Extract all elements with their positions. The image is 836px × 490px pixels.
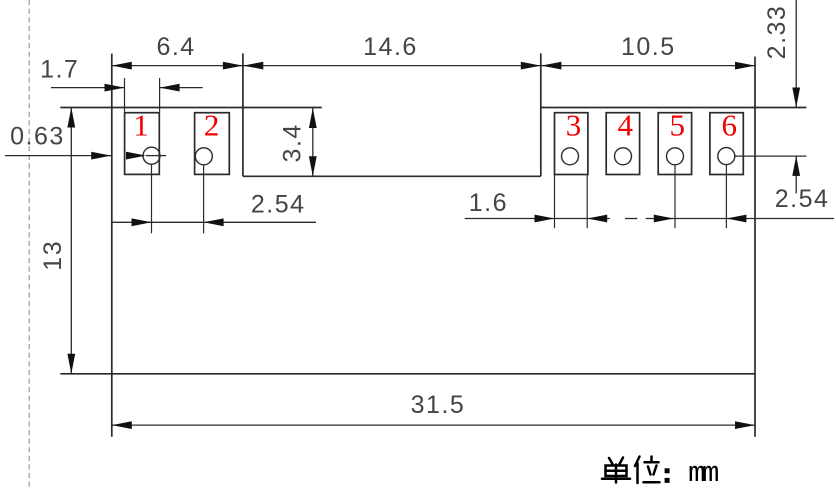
svg-text:1.6: 1.6	[469, 189, 508, 217]
svg-text:13: 13	[39, 240, 67, 271]
svg-text:3: 3	[566, 108, 582, 143]
svg-text:14.6: 14.6	[363, 33, 418, 61]
svg-text:2.33: 2.33	[763, 5, 791, 60]
svg-text:6: 6	[721, 108, 737, 143]
svg-text:2: 2	[204, 108, 220, 143]
svg-text:4: 4	[617, 108, 633, 143]
svg-text:mm: mm	[688, 457, 718, 490]
svg-text:2.54: 2.54	[775, 185, 830, 213]
svg-text:1.7: 1.7	[40, 56, 79, 84]
svg-text:31.5: 31.5	[411, 391, 466, 419]
svg-text:5: 5	[669, 108, 685, 143]
svg-text:3.4: 3.4	[279, 123, 307, 162]
svg-text:6.4: 6.4	[156, 33, 195, 61]
svg-text:0.63: 0.63	[10, 122, 65, 150]
svg-text:1: 1	[133, 108, 149, 143]
svg-text:10.5: 10.5	[621, 33, 676, 61]
svg-text:2.54: 2.54	[251, 190, 306, 218]
